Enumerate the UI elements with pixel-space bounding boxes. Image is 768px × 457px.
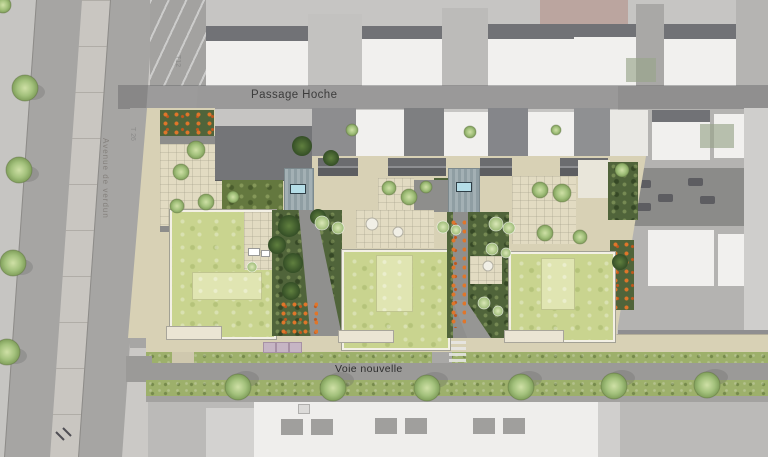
avenue-label: Avenue de verdun [101,138,110,219]
patio-tables [366,218,493,271]
parcel-label-t12: T12 [174,55,181,67]
courtyard-trees [170,124,629,244]
parcel-label-t26: T 26 [129,127,136,141]
masterplan-site-plan: Passage Hoche Voie nouvelle Avenue de ve… [0,0,768,457]
road-markings [56,428,71,440]
voie-nouvelle-label: Voie nouvelle [335,363,403,375]
vegetation-layer [0,0,768,457]
tree-shadows [3,84,728,388]
passage-hoche-label: Passage Hoche [251,89,337,101]
